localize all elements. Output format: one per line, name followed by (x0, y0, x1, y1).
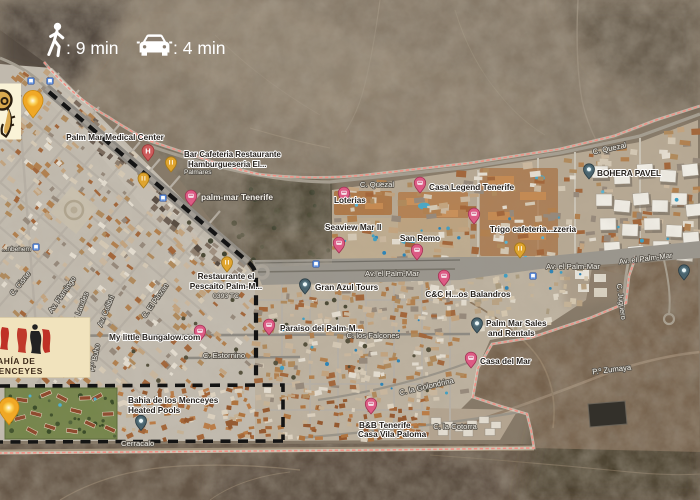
svg-text:Palm Mar Sales: Palm Mar Sales (486, 319, 547, 328)
svg-text:C. la Cotorra: C. la Cotorra (433, 422, 477, 431)
svg-text:Paraiso del Palm-M...: Paraiso del Palm-M... (280, 324, 363, 333)
svg-text:BOHERA PAVEL: BOHERA PAVEL (597, 169, 661, 178)
svg-text:Pescaito Palm-M...: Pescaito Palm-M... (190, 282, 262, 291)
svg-text:Palmares: Palmares (184, 169, 212, 176)
svg-text:Loterias: Loterias (334, 196, 366, 205)
svg-text:C&C H...os Balandros: C&C H...os Balandros (425, 290, 511, 299)
svg-text:: 4 min: : 4 min (173, 38, 226, 58)
svg-text:Casa Legend Tenerife: Casa Legend Tenerife (429, 183, 515, 192)
svg-text:C. Quezal: C. Quezal (360, 180, 394, 189)
svg-text:Restaurante el: Restaurante el (198, 272, 255, 281)
svg-text:0393 TC: 0393 TC (213, 293, 239, 300)
svg-text:Bar Cafeteria Restaurante: Bar Cafeteria Restaurante (184, 150, 282, 159)
svg-text:BAHÍA DE: BAHÍA DE (0, 355, 35, 366)
svg-text:Casa Vila Paloma: Casa Vila Paloma (358, 430, 427, 439)
svg-text:Trigo cafeteria...zzeria: Trigo cafeteria...zzeria (490, 225, 577, 234)
svg-text:Hamburgueseria El...: Hamburgueseria El... (188, 160, 267, 169)
svg-text:Casa del Mar: Casa del Mar (480, 357, 532, 366)
svg-text:Bahia de los Menceyes: Bahia de los Menceyes (128, 396, 219, 405)
svg-text:Av. el Palm-Mar: Av. el Palm-Mar (365, 269, 419, 278)
svg-text:MENCEYES: MENCEYES (0, 366, 43, 376)
svg-text:Cerracalo: Cerracalo (121, 439, 154, 448)
svg-text:Seaview Mar II: Seaview Mar II (325, 223, 381, 232)
svg-text:Heated Pools: Heated Pools (128, 406, 181, 415)
svg-text:My little Bungalow.com: My little Bungalow.com (109, 333, 200, 342)
svg-text:Gran Azul Tours: Gran Azul Tours (315, 283, 379, 292)
svg-text:C. Estornino: C. Estornino (203, 351, 245, 360)
svg-text:Av. el Palm-Mar: Av. el Palm-Mar (546, 262, 600, 271)
svg-text:and Rentals: and Rentals (488, 329, 535, 338)
svg-text:B&B Tenerife: B&B Tenerife (359, 421, 411, 430)
svg-text:Palm Mar Medical Center: Palm Mar Medical Center (66, 133, 164, 142)
svg-text:San Remo: San Remo (400, 234, 440, 243)
svg-text:: 9 min: : 9 min (66, 38, 119, 58)
svg-text:palm-mar Tenerife: palm-mar Tenerife (201, 192, 273, 202)
svg-text:...nbehem: ...nbehem (2, 246, 31, 253)
